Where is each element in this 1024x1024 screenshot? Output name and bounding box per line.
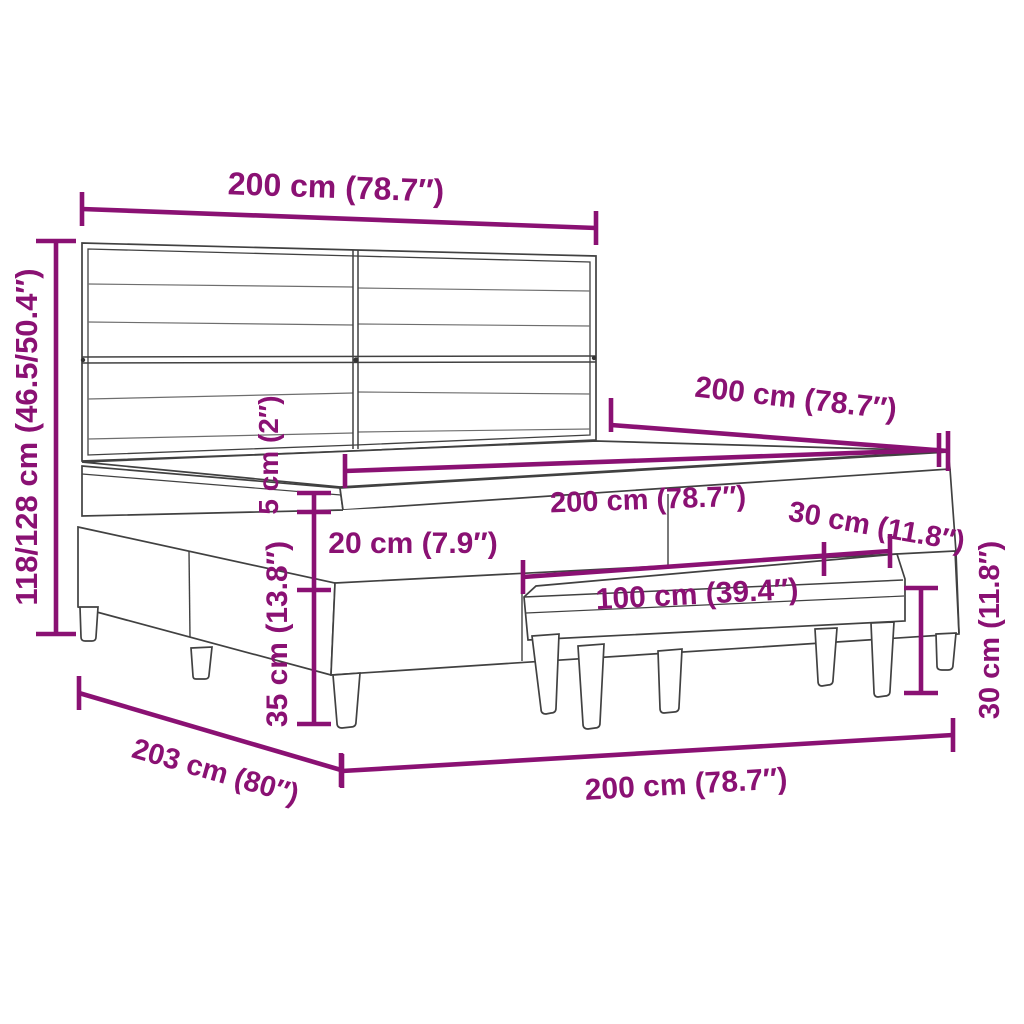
svg-text:20 cm (7.9″): 20 cm (7.9″) xyxy=(328,527,497,560)
svg-text:118/128 cm (46.5/50.4″): 118/128 cm (46.5/50.4″) xyxy=(9,268,44,605)
svg-text:35 cm (13.8″): 35 cm (13.8″) xyxy=(261,541,294,727)
svg-text:200 cm (78.7″): 200 cm (78.7″) xyxy=(550,481,747,520)
svg-text:30 cm (11.8″): 30 cm (11.8″) xyxy=(974,541,1006,719)
svg-text:200 cm (78.7″): 200 cm (78.7″) xyxy=(227,165,444,209)
svg-text:5 cm (2″): 5 cm (2″) xyxy=(253,395,284,514)
